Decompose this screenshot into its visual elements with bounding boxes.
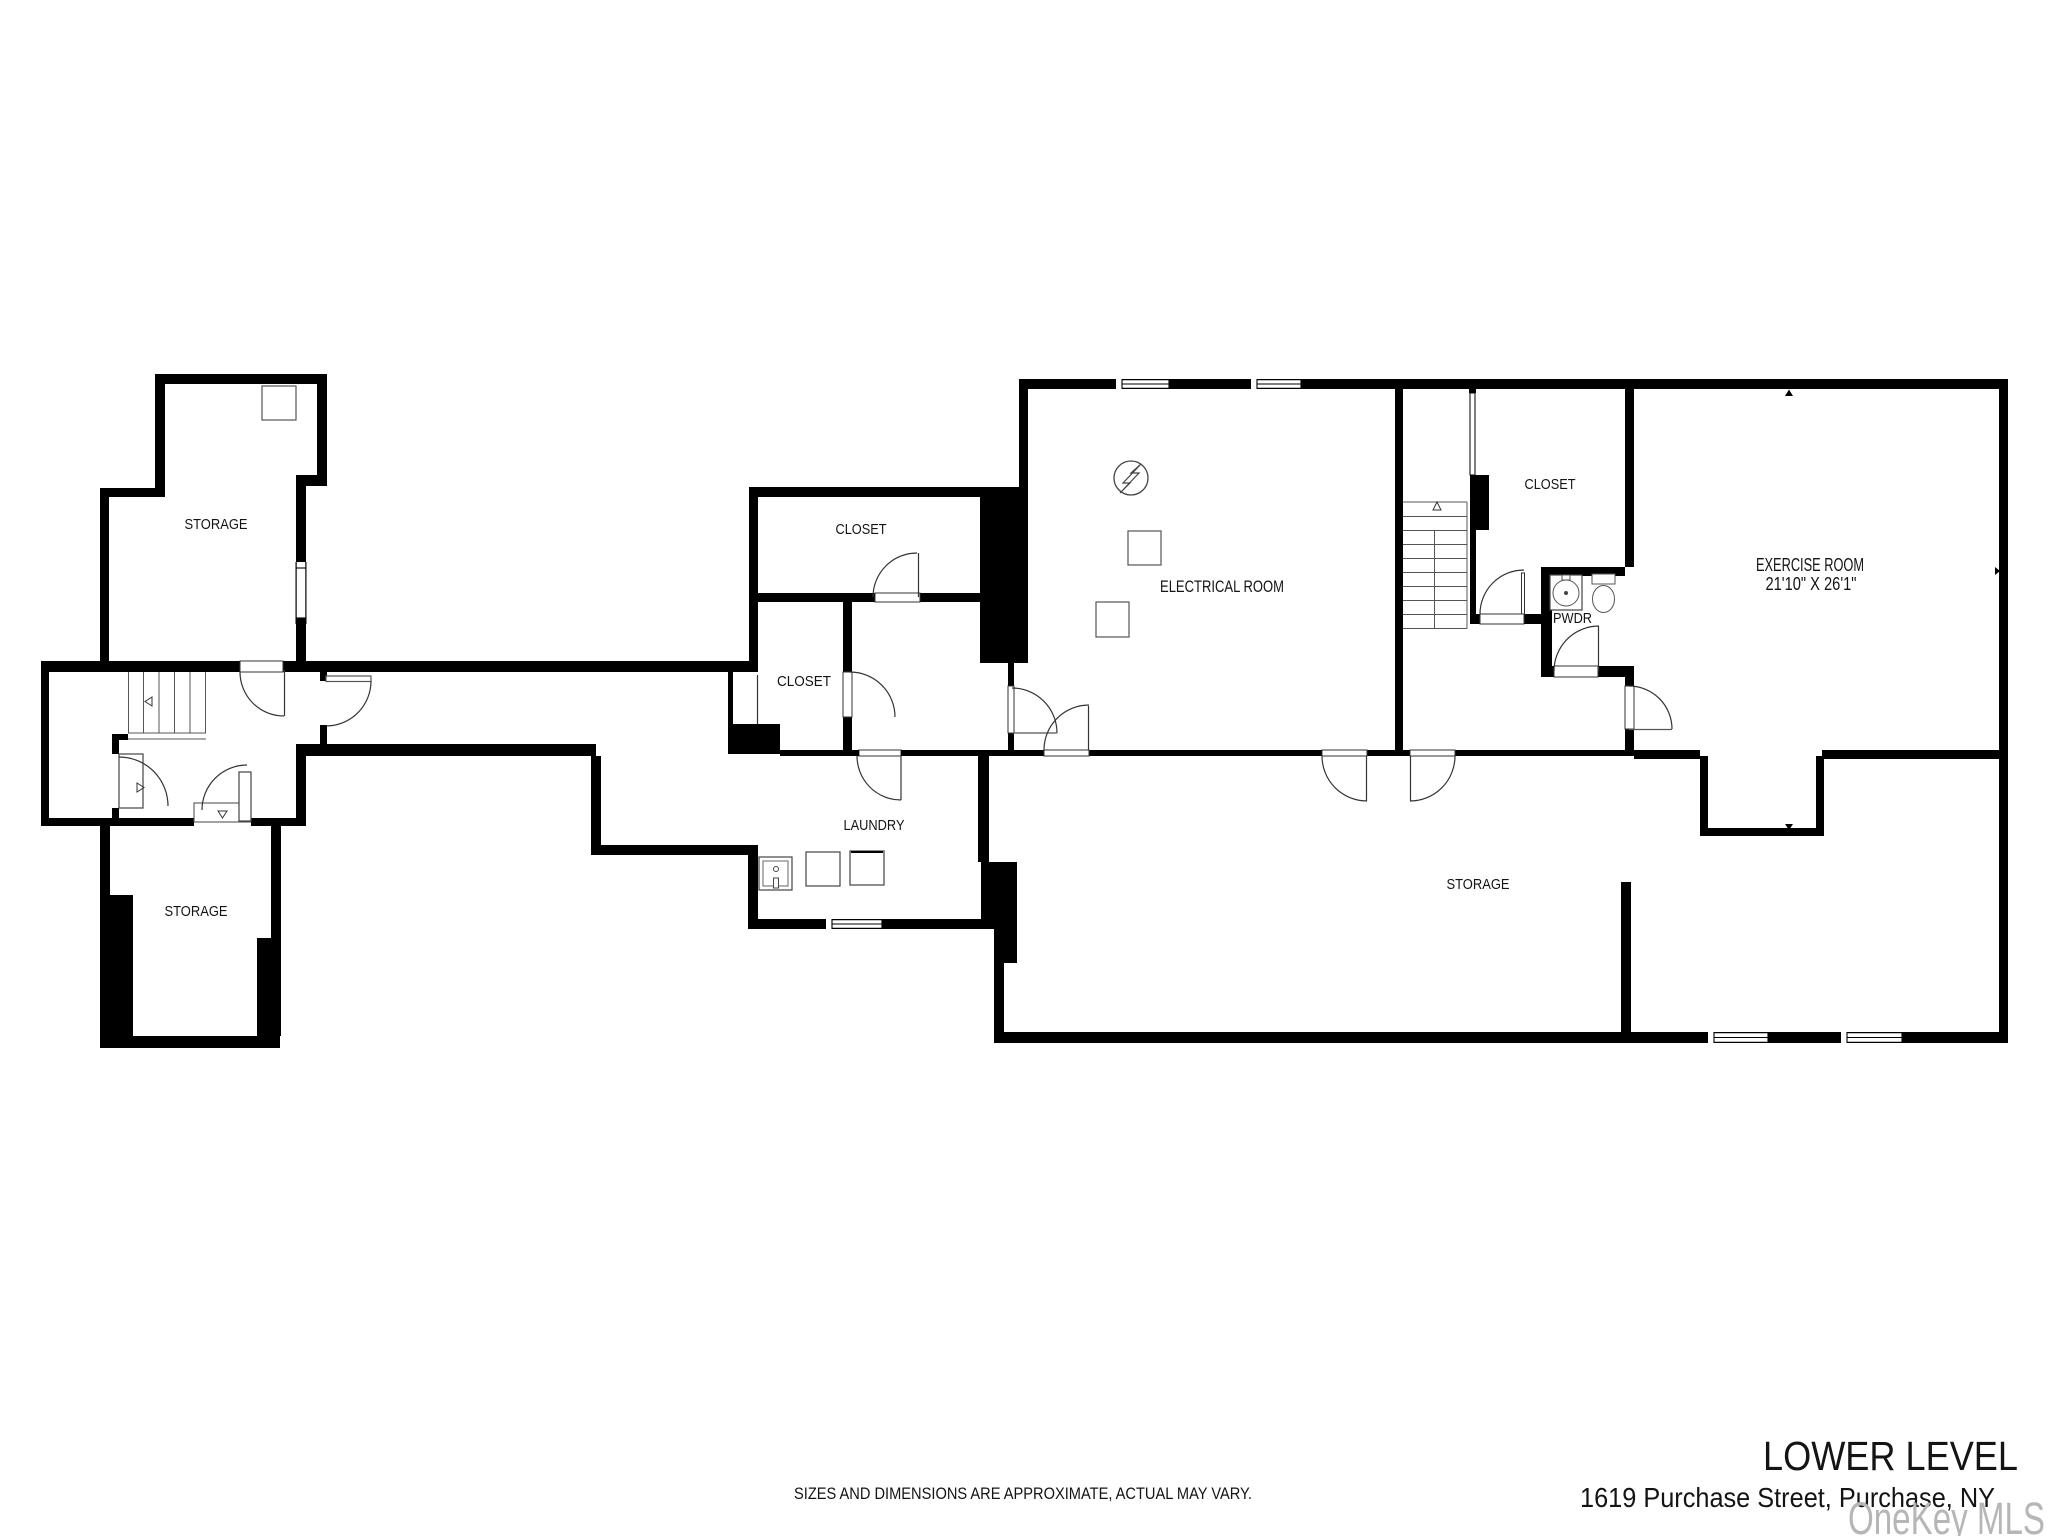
svg-text:EXERCISE ROOM: EXERCISE ROOM <box>1756 555 1864 575</box>
svg-text:PWDR: PWDR <box>1553 610 1592 627</box>
svg-text:LOWER LEVEL: LOWER LEVEL <box>1763 1433 2018 1479</box>
svg-text:CLOSET: CLOSET <box>836 521 887 538</box>
svg-text:SIZES AND DIMENSIONS ARE APPRO: SIZES AND DIMENSIONS ARE APPROXIMATE, AC… <box>794 1485 1252 1503</box>
svg-text:STORAGE: STORAGE <box>1447 876 1510 893</box>
svg-text:STORAGE: STORAGE <box>165 903 228 920</box>
svg-text:STORAGE: STORAGE <box>185 516 248 533</box>
svg-text:CLOSET: CLOSET <box>1525 476 1576 493</box>
svg-text:ELECTRICAL ROOM: ELECTRICAL ROOM <box>1160 577 1284 596</box>
svg-text:CLOSET: CLOSET <box>777 673 831 690</box>
svg-text:OneKey MLS: OneKey MLS <box>1848 1493 2045 1536</box>
svg-text:LAUNDRY: LAUNDRY <box>844 817 905 834</box>
svg-text:21'10" X 26'1": 21'10" X 26'1" <box>1766 574 1857 594</box>
